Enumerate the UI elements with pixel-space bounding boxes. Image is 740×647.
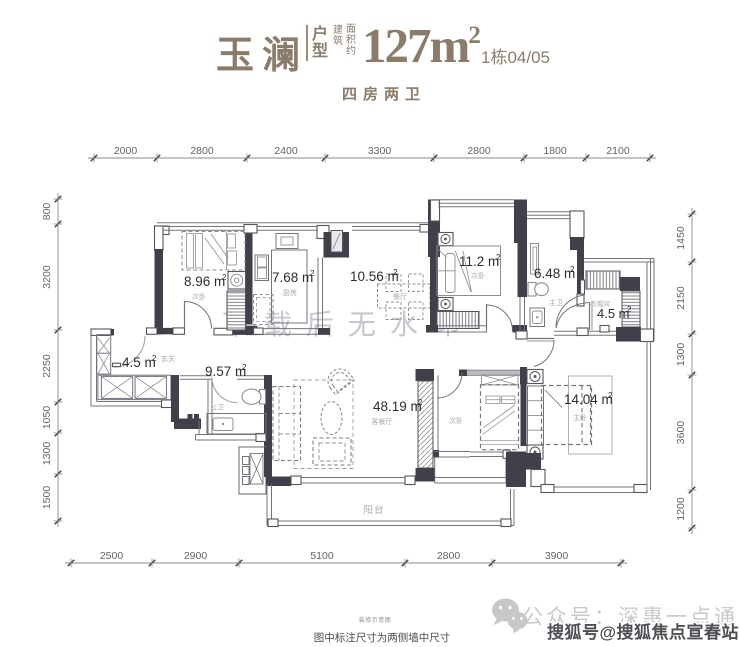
svg-text:衣帽间: 衣帽间 <box>590 299 610 308</box>
svg-text:厨房: 厨房 <box>283 288 297 297</box>
svg-text:1500: 1500 <box>41 486 53 510</box>
svg-text:2800: 2800 <box>467 145 491 157</box>
svg-text:5100: 5100 <box>310 550 334 562</box>
svg-text:客餐厅: 客餐厅 <box>372 417 393 426</box>
svg-text:800: 800 <box>41 203 53 221</box>
svg-text:2: 2 <box>242 363 247 372</box>
svg-text:2150: 2150 <box>675 286 687 310</box>
svg-text:2: 2 <box>393 268 398 277</box>
svg-text:2400: 2400 <box>274 145 298 157</box>
svg-text:图中标注尺寸为两侧墙中尺寸: 图中标注尺寸为两侧墙中尺寸 <box>314 631 451 644</box>
svg-text:10.56 m: 10.56 m <box>350 269 399 284</box>
svg-text:11.2 m: 11.2 m <box>459 254 499 269</box>
svg-text:2: 2 <box>222 273 227 282</box>
svg-text:阳台: 阳台 <box>363 504 384 516</box>
svg-text:2: 2 <box>418 398 423 407</box>
svg-text:48.19 m: 48.19 m <box>373 399 422 414</box>
svg-text:装修示意图: 装修示意图 <box>359 616 392 624</box>
svg-text:次卧: 次卧 <box>192 292 206 301</box>
svg-text:2: 2 <box>627 305 632 314</box>
svg-text:搜狐号@搜狐焦点宣春站: 搜狐号@搜狐焦点宣春站 <box>547 622 739 642</box>
svg-text:2100: 2100 <box>606 145 630 157</box>
svg-text:2: 2 <box>570 265 575 274</box>
svg-text:1050: 1050 <box>41 406 53 430</box>
svg-text:1450: 1450 <box>675 226 687 250</box>
svg-text:3200: 3200 <box>41 265 53 289</box>
svg-text:2250: 2250 <box>41 354 53 378</box>
svg-text:1300: 1300 <box>675 343 687 367</box>
svg-text:次卧: 次卧 <box>449 416 463 425</box>
svg-text:14.04 m: 14.04 m <box>564 392 613 407</box>
svg-text:2800: 2800 <box>437 550 461 562</box>
svg-text:公卫: 公卫 <box>210 404 224 412</box>
svg-text:2500: 2500 <box>100 550 124 562</box>
svg-text:餐厅: 餐厅 <box>393 292 407 301</box>
svg-text:9.57 m: 9.57 m <box>205 364 246 379</box>
svg-text:3300: 3300 <box>368 145 392 157</box>
svg-text:次卧: 次卧 <box>471 271 485 280</box>
svg-text:玄关: 玄关 <box>161 354 175 363</box>
svg-text:主卫: 主卫 <box>549 298 563 307</box>
svg-text:3600: 3600 <box>675 421 687 445</box>
svg-text:1300: 1300 <box>41 442 53 466</box>
svg-text:2800: 2800 <box>190 145 214 157</box>
svg-text:8.96 m: 8.96 m <box>184 274 225 289</box>
svg-text:2: 2 <box>152 354 157 363</box>
svg-text:2: 2 <box>608 391 613 400</box>
svg-text:2000: 2000 <box>114 145 138 157</box>
svg-text:2: 2 <box>496 253 501 262</box>
svg-text:4.5 m: 4.5 m <box>122 355 156 370</box>
svg-text:2900: 2900 <box>184 550 208 562</box>
svg-text:3900: 3900 <box>545 550 569 562</box>
svg-text:4.5 m: 4.5 m <box>597 306 630 321</box>
svg-text:2: 2 <box>310 269 315 278</box>
svg-text:主卧: 主卧 <box>573 413 587 422</box>
svg-text:1200: 1200 <box>675 497 687 521</box>
svg-text:7.68 m: 7.68 m <box>272 270 313 285</box>
svg-text:1800: 1800 <box>543 145 567 157</box>
